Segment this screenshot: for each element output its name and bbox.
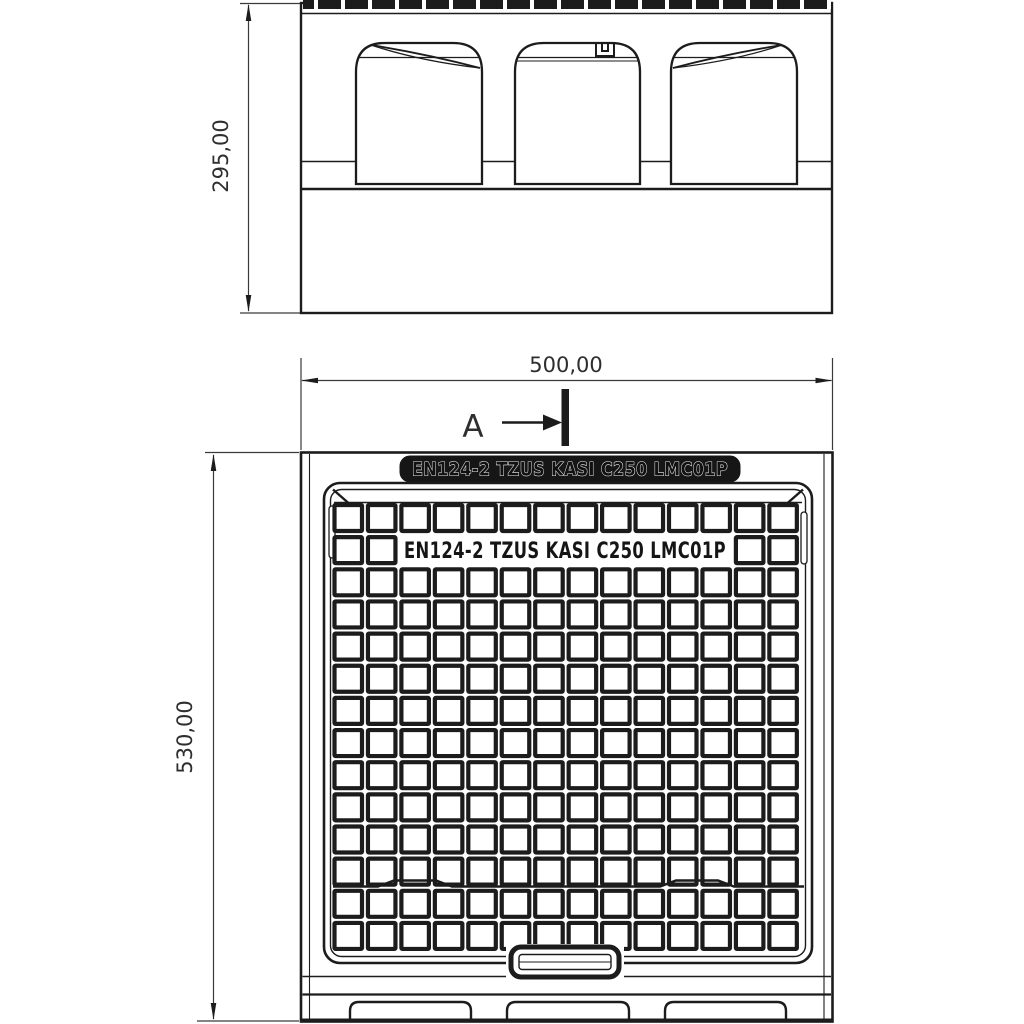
grid-square bbox=[569, 859, 597, 885]
grid-square bbox=[769, 859, 797, 885]
grid-square bbox=[435, 698, 463, 724]
grid-square bbox=[736, 762, 764, 788]
grid-square bbox=[669, 601, 697, 627]
grid-square bbox=[702, 634, 730, 660]
grid-square bbox=[769, 794, 797, 820]
grid-square bbox=[535, 762, 563, 788]
dim-arrow-up-icon bbox=[211, 454, 217, 471]
grid-square bbox=[769, 730, 797, 756]
grid-square bbox=[502, 569, 530, 595]
grid-square bbox=[368, 730, 396, 756]
grid-square bbox=[736, 569, 764, 595]
section-label: A bbox=[462, 409, 483, 445]
grid-square bbox=[569, 505, 597, 531]
grid-square bbox=[335, 794, 363, 820]
grid-square bbox=[702, 505, 730, 531]
grid-square bbox=[368, 762, 396, 788]
dimension-530: 530,00 bbox=[173, 453, 299, 1022]
grid-square bbox=[736, 505, 764, 531]
grid-square bbox=[435, 923, 463, 949]
grid-square bbox=[535, 666, 563, 692]
technical-drawing-canvas: 295,00 500,00 A 530,00 EN124-2 TZUS KASI… bbox=[0, 0, 1024, 1024]
grid-square bbox=[569, 730, 597, 756]
grid-square bbox=[502, 666, 530, 692]
grid-square bbox=[736, 923, 764, 949]
dim-arrow-down-icon bbox=[246, 295, 252, 312]
dim-arrow-up-icon bbox=[246, 4, 252, 21]
grid-square bbox=[669, 505, 697, 531]
grid-square bbox=[368, 601, 396, 627]
grid-square bbox=[669, 794, 697, 820]
frame-marking-text: EN124-2 TZUS KASI C250 LMC01P bbox=[412, 459, 728, 481]
plan-view: EN124-2 TZUS KASI C250 LMC01P EN124-2 TZ… bbox=[301, 453, 833, 1022]
grid-square bbox=[669, 730, 697, 756]
frame-marking-band: EN124-2 TZUS KASI C250 LMC01P bbox=[400, 456, 740, 482]
grid-square bbox=[401, 698, 429, 724]
grid-square bbox=[335, 601, 363, 627]
grid-square bbox=[569, 569, 597, 595]
grid-square bbox=[702, 698, 730, 724]
grid-square bbox=[702, 601, 730, 627]
grid-square bbox=[736, 537, 764, 563]
grid-square bbox=[636, 505, 664, 531]
grid-square bbox=[602, 634, 630, 660]
grid-square bbox=[636, 634, 664, 660]
grid-square bbox=[702, 923, 730, 949]
grid-square bbox=[335, 859, 363, 885]
grid-square bbox=[335, 762, 363, 788]
grid-square bbox=[401, 891, 429, 917]
grid-square bbox=[502, 794, 530, 820]
grid-square bbox=[736, 859, 764, 885]
grid-square bbox=[736, 827, 764, 853]
grid-square bbox=[435, 634, 463, 660]
grid-square bbox=[702, 794, 730, 820]
grid-square bbox=[502, 859, 530, 885]
grid-square bbox=[435, 569, 463, 595]
grid-square bbox=[602, 601, 630, 627]
grid-square bbox=[401, 794, 429, 820]
grid-square bbox=[636, 827, 664, 853]
elevation-lug-left bbox=[356, 43, 482, 184]
grid-square bbox=[468, 505, 496, 531]
grid-square bbox=[636, 891, 664, 917]
grid-square bbox=[769, 505, 797, 531]
grid-square bbox=[335, 505, 363, 531]
grid-square bbox=[401, 762, 429, 788]
grid-square bbox=[468, 601, 496, 627]
grid-square bbox=[569, 601, 597, 627]
grid-square bbox=[435, 827, 463, 853]
lift-handle bbox=[506, 944, 624, 979]
dim-value-295: 295,00 bbox=[209, 119, 233, 192]
grid-square bbox=[368, 505, 396, 531]
cover-side-lug-right bbox=[801, 512, 807, 564]
grid-square bbox=[636, 601, 664, 627]
grid-square bbox=[669, 698, 697, 724]
grid-square bbox=[769, 891, 797, 917]
grid-square bbox=[535, 601, 563, 627]
grid-square bbox=[335, 698, 363, 724]
grid-square bbox=[468, 730, 496, 756]
grid-square bbox=[569, 827, 597, 853]
grid-square bbox=[569, 666, 597, 692]
grid-square bbox=[602, 505, 630, 531]
grid-square bbox=[435, 666, 463, 692]
grid-square bbox=[736, 634, 764, 660]
grid-square bbox=[769, 762, 797, 788]
grid-square bbox=[401, 730, 429, 756]
grid-square bbox=[435, 505, 463, 531]
grid-square bbox=[769, 601, 797, 627]
section-cut-bar bbox=[562, 389, 570, 446]
grid-square bbox=[736, 730, 764, 756]
elevation-view bbox=[301, 0, 832, 313]
grid-square bbox=[502, 730, 530, 756]
elevation-top-texture bbox=[303, 0, 831, 9]
grid-square bbox=[602, 666, 630, 692]
grid-square bbox=[602, 891, 630, 917]
grid-square bbox=[702, 569, 730, 595]
grid-square bbox=[368, 827, 396, 853]
cover-marking-text: EN124-2 TZUS KASI C250 LMC01P bbox=[404, 539, 726, 564]
grid-square bbox=[368, 634, 396, 660]
grid-square bbox=[669, 923, 697, 949]
grid-square bbox=[335, 923, 363, 949]
grid-square bbox=[602, 730, 630, 756]
grid-square bbox=[702, 891, 730, 917]
dim-arrow-left-icon bbox=[301, 378, 318, 384]
grid-square bbox=[468, 569, 496, 595]
grid-square bbox=[435, 601, 463, 627]
grid-square bbox=[468, 762, 496, 788]
grid-square bbox=[335, 569, 363, 595]
grid-square bbox=[602, 569, 630, 595]
grid-square bbox=[368, 569, 396, 595]
grid-square bbox=[669, 827, 697, 853]
grid-square bbox=[502, 634, 530, 660]
grid-square bbox=[669, 762, 697, 788]
grid-square bbox=[769, 634, 797, 660]
grid-square bbox=[335, 666, 363, 692]
grid-square bbox=[702, 730, 730, 756]
grid-square bbox=[401, 827, 429, 853]
grid-square bbox=[468, 859, 496, 885]
grid-square bbox=[368, 923, 396, 949]
grid-square bbox=[368, 891, 396, 917]
grid-square bbox=[468, 923, 496, 949]
grid-square bbox=[736, 666, 764, 692]
dim-value-530: 530,00 bbox=[173, 700, 197, 773]
grid-square bbox=[669, 634, 697, 660]
grid-square bbox=[535, 859, 563, 885]
grid-square bbox=[368, 666, 396, 692]
grid-square bbox=[401, 634, 429, 660]
grid-square bbox=[769, 666, 797, 692]
grid-square bbox=[669, 891, 697, 917]
grid-square bbox=[535, 891, 563, 917]
grid-square bbox=[569, 794, 597, 820]
grid-square bbox=[435, 730, 463, 756]
grid-square bbox=[602, 859, 630, 885]
grid-square bbox=[602, 698, 630, 724]
grid-square bbox=[401, 505, 429, 531]
grid-square bbox=[435, 762, 463, 788]
grid-square bbox=[569, 891, 597, 917]
grid-square bbox=[468, 666, 496, 692]
grid-square bbox=[468, 794, 496, 820]
grid-square bbox=[401, 666, 429, 692]
grid-square bbox=[535, 794, 563, 820]
dimension-295: 295,00 bbox=[209, 4, 300, 314]
grid-square bbox=[636, 923, 664, 949]
grid-square bbox=[535, 730, 563, 756]
grid-square bbox=[368, 794, 396, 820]
grid-square bbox=[569, 762, 597, 788]
grid-square bbox=[535, 505, 563, 531]
grid-square bbox=[535, 698, 563, 724]
grid-square bbox=[769, 827, 797, 853]
grid-square bbox=[636, 794, 664, 820]
grid-square bbox=[368, 698, 396, 724]
grid-square bbox=[401, 923, 429, 949]
dim-arrow-right-icon bbox=[816, 378, 833, 384]
cover: EN124-2 TZUS KASI C250 LMC01P bbox=[324, 483, 812, 963]
grid-square bbox=[602, 762, 630, 788]
grid-square bbox=[502, 698, 530, 724]
grid-square bbox=[736, 794, 764, 820]
grid-square bbox=[368, 537, 396, 563]
grid-square bbox=[435, 794, 463, 820]
grid-square bbox=[702, 666, 730, 692]
grid-square bbox=[769, 698, 797, 724]
grid-square bbox=[769, 537, 797, 563]
grid-square bbox=[636, 666, 664, 692]
grid-square bbox=[468, 891, 496, 917]
grid-square bbox=[636, 859, 664, 885]
grid-square bbox=[569, 634, 597, 660]
grid-square bbox=[502, 762, 530, 788]
grid-square bbox=[669, 666, 697, 692]
grid-square bbox=[535, 569, 563, 595]
grid-square bbox=[502, 827, 530, 853]
grid-square bbox=[769, 923, 797, 949]
grid-square bbox=[335, 827, 363, 853]
grid-square bbox=[401, 601, 429, 627]
grid-square bbox=[736, 698, 764, 724]
grid-square bbox=[636, 569, 664, 595]
grid-square bbox=[636, 698, 664, 724]
grid-square bbox=[736, 891, 764, 917]
dim-value-500: 500,00 bbox=[529, 353, 602, 377]
grid-square bbox=[468, 827, 496, 853]
grid-square bbox=[468, 698, 496, 724]
grid-square bbox=[335, 634, 363, 660]
grid-square bbox=[702, 827, 730, 853]
grid-square bbox=[736, 601, 764, 627]
grid-square bbox=[702, 762, 730, 788]
grid-square bbox=[602, 827, 630, 853]
section-arrow-head-icon bbox=[543, 415, 562, 431]
grid-square bbox=[468, 634, 496, 660]
grid-square bbox=[535, 634, 563, 660]
grid-square bbox=[435, 891, 463, 917]
grid-square bbox=[636, 762, 664, 788]
grid-square bbox=[401, 569, 429, 595]
elevation-lug-right bbox=[671, 43, 797, 184]
section-marker-a: A bbox=[462, 389, 569, 446]
grid-square bbox=[569, 698, 597, 724]
grid-square bbox=[335, 730, 363, 756]
grid-square bbox=[535, 827, 563, 853]
grid-square bbox=[502, 601, 530, 627]
grid-square bbox=[335, 891, 363, 917]
grid-square bbox=[669, 569, 697, 595]
grid-square bbox=[636, 730, 664, 756]
grid-square bbox=[502, 891, 530, 917]
grid-square bbox=[502, 505, 530, 531]
dim-arrow-down-icon bbox=[211, 1003, 217, 1020]
grid-square bbox=[769, 569, 797, 595]
grid-square bbox=[602, 794, 630, 820]
grid-square bbox=[335, 537, 363, 563]
elevation-lug-center bbox=[515, 43, 640, 184]
